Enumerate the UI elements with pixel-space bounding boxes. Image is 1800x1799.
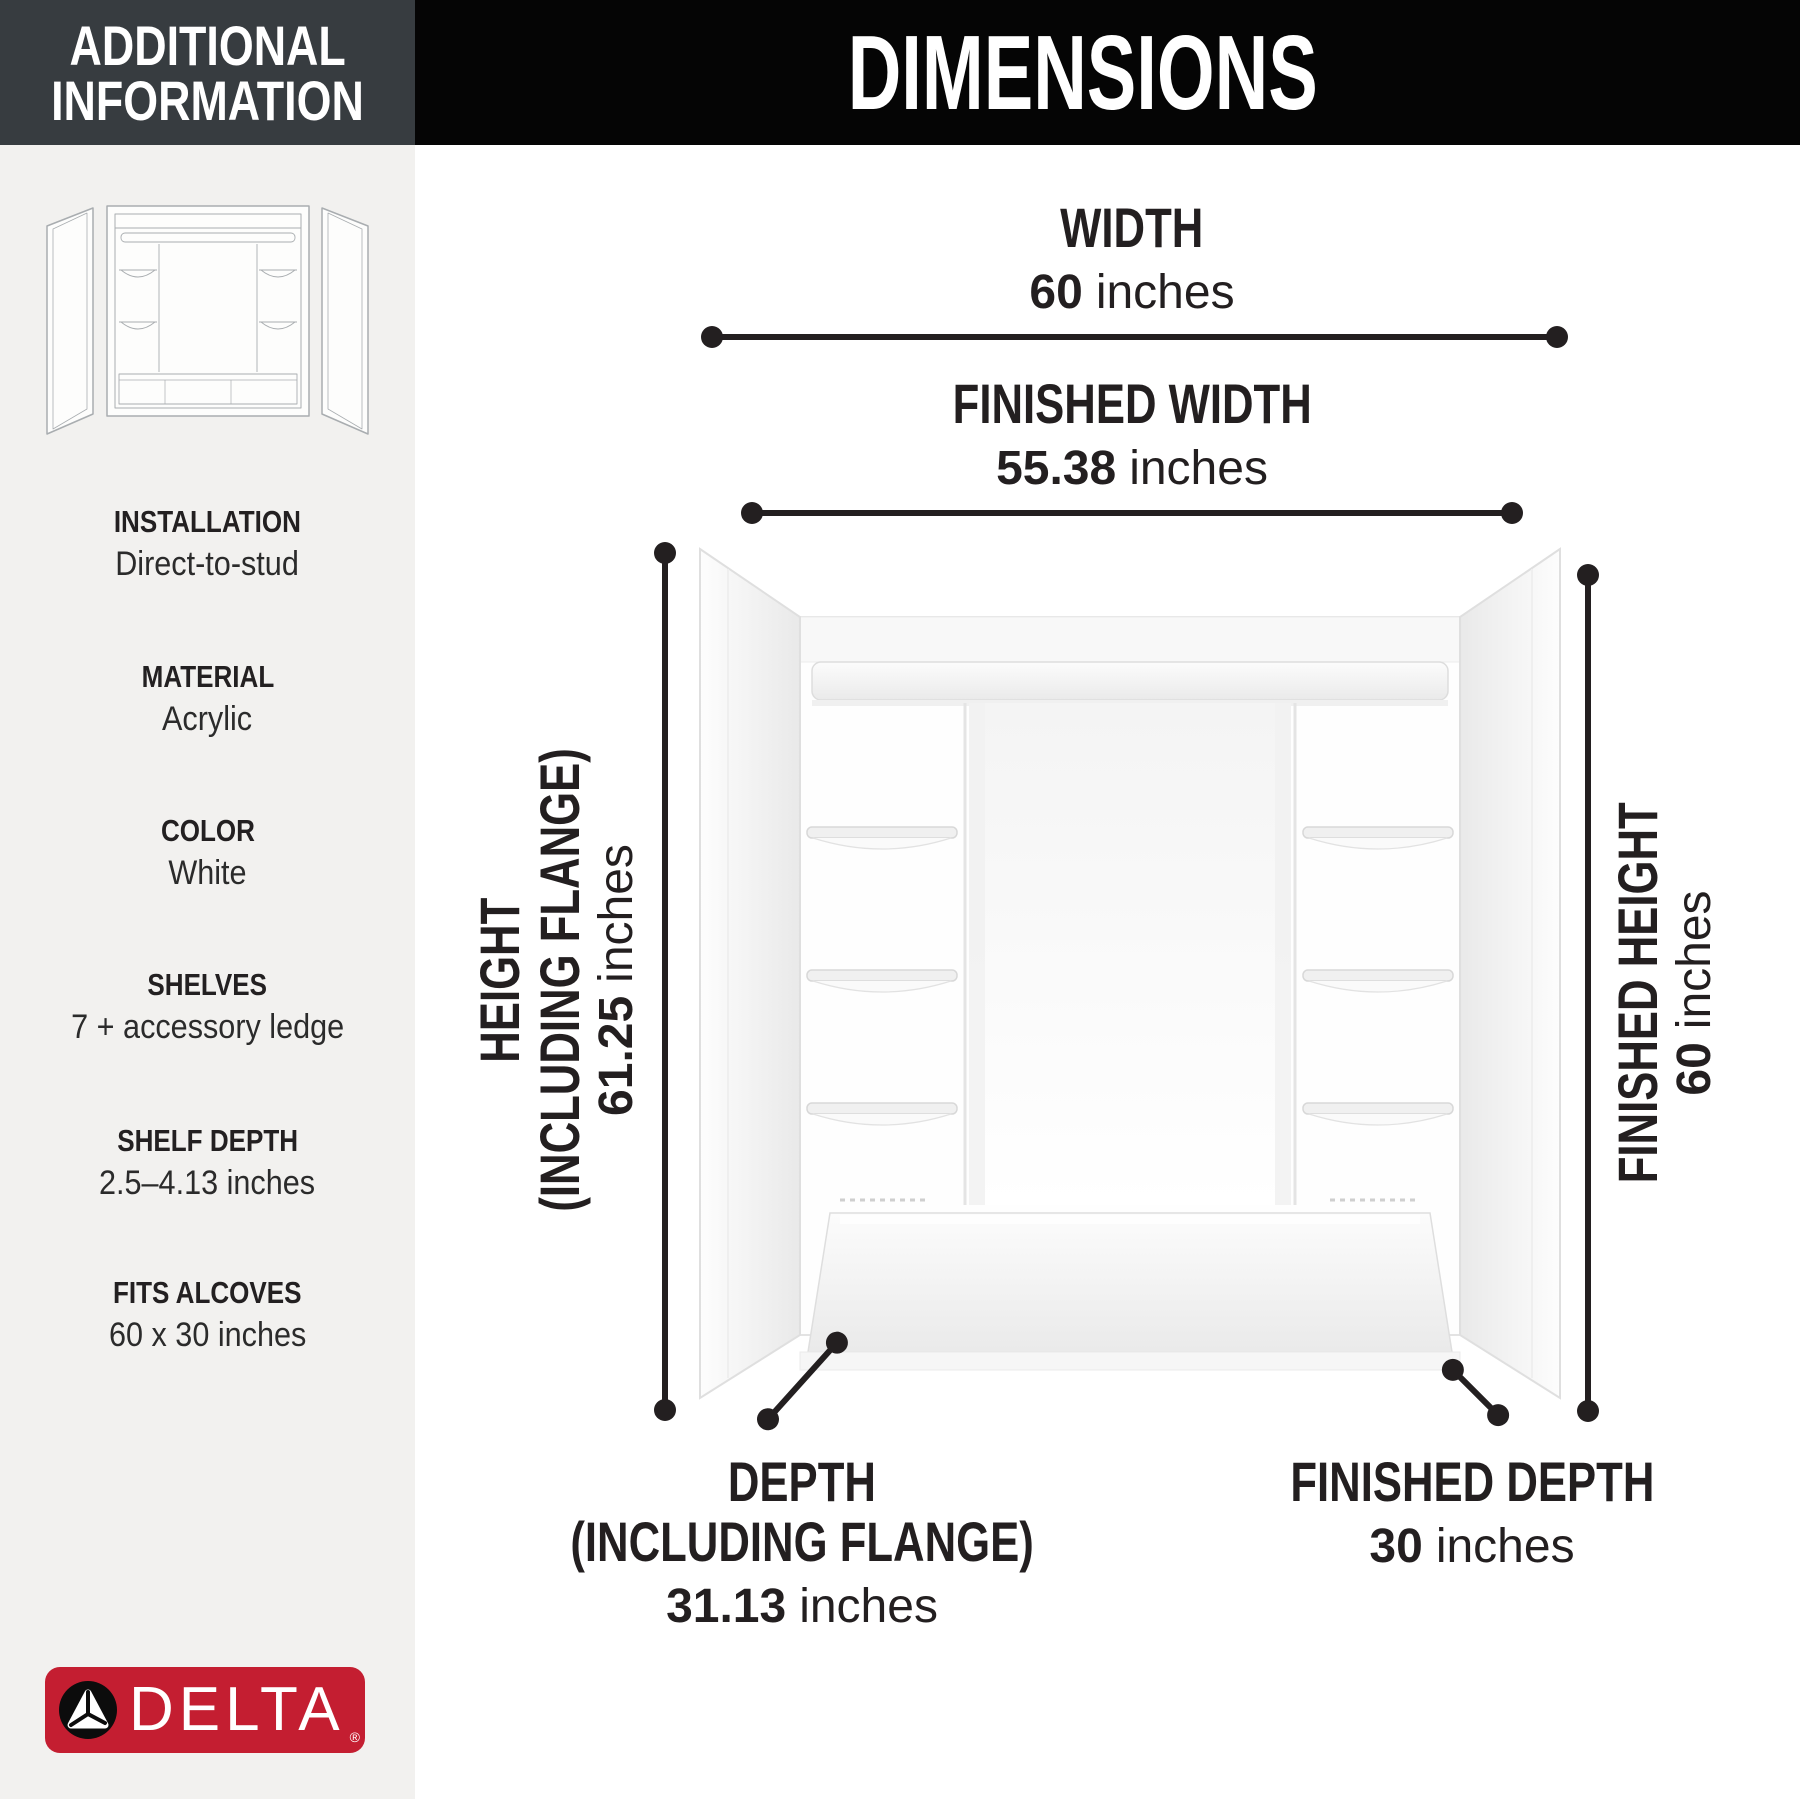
- height-label-line1: HEIGHT: [470, 897, 530, 1062]
- delta-triangle-icon: [58, 1680, 118, 1740]
- registered-mark: ®: [350, 1729, 360, 1745]
- height-annotation: HEIGHT (INCLUDING FLANGE) 61.25inches: [470, 530, 650, 1430]
- spec-material: MATERIAL Acrylic: [0, 657, 415, 741]
- shower-wall-set-render: [690, 545, 1570, 1405]
- depth-value: 31.13inches: [502, 1580, 1102, 1634]
- finished-depth-label: FINISHED DEPTH: [1290, 1452, 1654, 1512]
- dimensions-infographic: ADDITIONAL INFORMATION: [0, 0, 1800, 1799]
- spec-label: FITS ALCOVES: [113, 1273, 302, 1313]
- delta-logo: DELTA ®: [45, 1667, 365, 1753]
- sidebar-header-line2: INFORMATION: [51, 73, 364, 128]
- finished-width-value: 55.38inches: [832, 442, 1432, 496]
- finished-height-annotation: FINISHED HEIGHT 60inches: [1608, 543, 1728, 1443]
- spec-value: Direct-to-stud: [116, 542, 300, 586]
- dim-endpoint-dot: [1546, 326, 1568, 348]
- height-value: 61.25inches: [590, 530, 644, 1430]
- spec-value: 7 + accessory ledge: [71, 1005, 344, 1049]
- finished-width-dimension-line: [752, 510, 1512, 516]
- spec-label: INSTALLATION: [114, 502, 301, 542]
- width-label: WIDTH: [1060, 198, 1203, 258]
- spec-installation: INSTALLATION Direct-to-stud: [0, 502, 415, 586]
- spec-value: Acrylic: [162, 697, 252, 741]
- dim-endpoint-dot: [752, 1404, 783, 1435]
- spec-label: SHELF DEPTH: [117, 1121, 298, 1161]
- spec-value: 2.5–4.13 inches: [99, 1161, 315, 1205]
- sidebar: ADDITIONAL INFORMATION: [0, 0, 415, 1799]
- depth-label-line1: DEPTH: [728, 1452, 876, 1512]
- finished-height-value: 60inches: [1668, 543, 1722, 1443]
- dim-endpoint-dot: [654, 542, 676, 564]
- dim-endpoint-dot: [1577, 564, 1599, 586]
- dim-endpoint-dot: [701, 326, 723, 348]
- spec-label: MATERIAL: [141, 657, 274, 697]
- spec-value: 60 x 30 inches: [109, 1313, 306, 1357]
- sidebar-header-line1: ADDITIONAL: [69, 18, 345, 73]
- finished-depth-value: 30inches: [1172, 1520, 1772, 1574]
- dim-endpoint-dot: [1501, 502, 1523, 524]
- height-dimension-line: [662, 553, 668, 1410]
- dim-endpoint-dot: [654, 1399, 676, 1421]
- spec-shelves: SHELVES 7 + accessory ledge: [0, 965, 415, 1049]
- delta-brand-text: DELTA: [129, 1667, 345, 1753]
- width-annotation: WIDTH 60inches: [832, 198, 1432, 320]
- spec-shelf-depth: SHELF DEPTH 2.5–4.13 inches: [0, 1121, 415, 1205]
- spec-color: COLOR White: [0, 811, 415, 895]
- dim-endpoint-dot: [741, 502, 763, 524]
- finished-width-label: FINISHED WIDTH: [952, 374, 1311, 434]
- dim-endpoint-dot: [1577, 1400, 1599, 1422]
- width-value: 60inches: [832, 266, 1432, 320]
- finished-height-label: FINISHED HEIGHT: [1608, 802, 1668, 1183]
- finished-width-annotation: FINISHED WIDTH 55.38inches: [832, 374, 1432, 496]
- height-label-line2: (INCLUDING FLANGE): [530, 748, 590, 1211]
- spec-fits-alcoves: FITS ALCOVES 60 x 30 inches: [0, 1273, 415, 1357]
- sidebar-header: ADDITIONAL INFORMATION: [0, 0, 415, 145]
- spec-value: White: [168, 851, 246, 895]
- dimensions-header: DIMENSIONS: [415, 0, 1800, 145]
- width-dimension-line: [712, 334, 1557, 340]
- finished-depth-annotation: FINISHED DEPTH 30inches: [1172, 1452, 1772, 1574]
- finished-height-dimension-line: [1585, 575, 1591, 1411]
- depth-label-line2: (INCLUDING FLANGE): [570, 1512, 1033, 1572]
- depth-annotation: DEPTH (INCLUDING FLANGE) 31.13inches: [502, 1452, 1102, 1634]
- spec-label: COLOR: [160, 811, 254, 851]
- shower-wall-set-line-drawing-icon: [35, 192, 380, 437]
- spec-label: SHELVES: [148, 965, 268, 1005]
- page-title: DIMENSIONS: [848, 20, 1318, 126]
